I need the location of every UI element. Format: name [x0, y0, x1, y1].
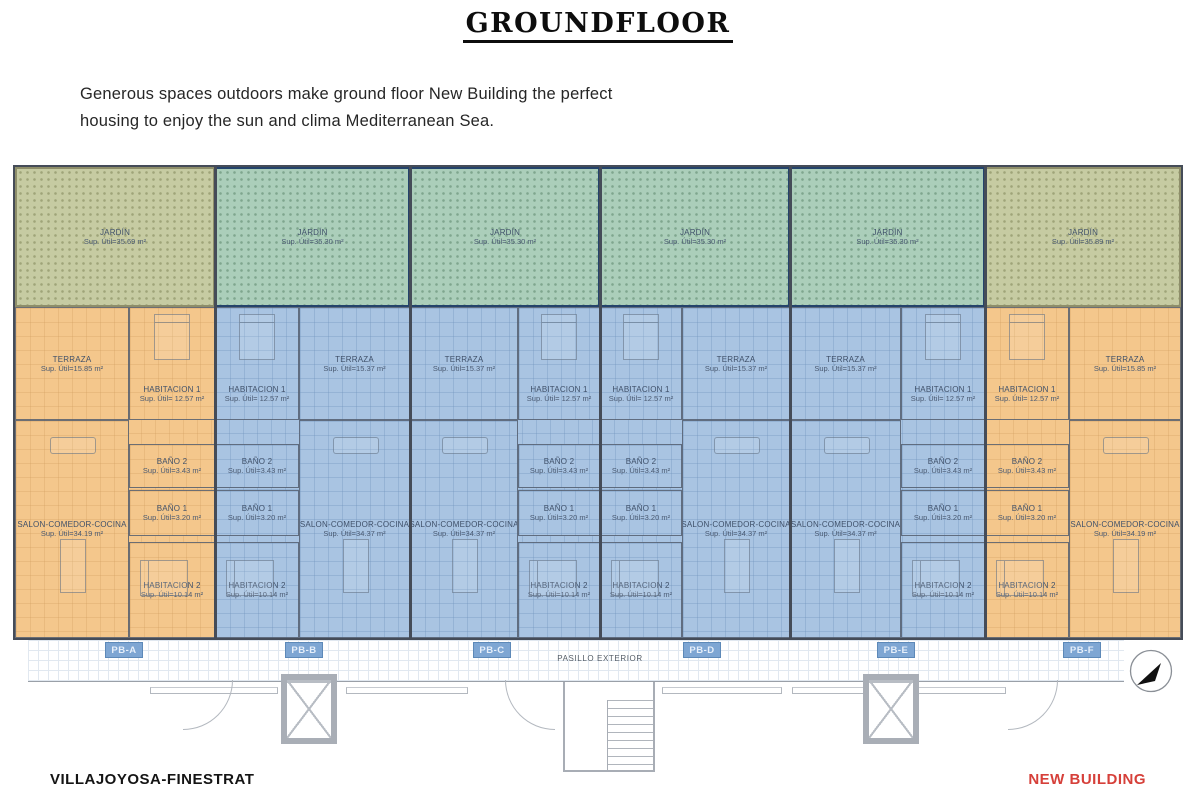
- room-area: Sup. Útil= 12.57 m²: [609, 394, 673, 403]
- room-habitacion-2: HABITACION 2Sup. Útil=10.14 m²: [901, 542, 985, 638]
- room-salon-comedor-cocina: SALON-COMEDOR-COCINASup. Útil=34.37 m²: [790, 420, 901, 638]
- room-area: Sup. Útil= 12.57 m²: [225, 394, 289, 403]
- party-wall: [599, 167, 602, 638]
- room-habitacion-2: HABITACION 2Sup. Útil=10.14 m²: [600, 542, 682, 638]
- furniture-bed-h: [996, 560, 1044, 596]
- room-bano-2: BAÑO 2Sup. Útil=3.43 m²: [518, 444, 600, 488]
- room-salon-comedor-cocina: SALON-COMEDOR-COCINASup. Útil=34.19 m²: [1069, 420, 1181, 638]
- room-habitacion-2: HABITACION 2Sup. Útil=10.14 m²: [215, 542, 299, 638]
- room-name: BAÑO 1: [1012, 504, 1043, 513]
- room-name: HABITACION 1: [612, 385, 669, 394]
- furniture-bed-h: [912, 560, 960, 596]
- furniture-bed-v: [541, 314, 577, 360]
- room-area: Sup. Útil=34.37 m²: [323, 529, 385, 538]
- room-salon-comedor-cocina: SALON-COMEDOR-COCINASup. Útil=34.37 m²: [299, 420, 410, 638]
- furniture-bed-h: [529, 560, 577, 596]
- room-name: BAÑO 1: [626, 504, 657, 513]
- footer-brand-label: NEW BUILDING: [1028, 771, 1146, 788]
- room-salon-comedor-cocina: SALON-COMEDOR-COCINASup. Útil=34.37 m²: [682, 420, 790, 638]
- room-name: TERRAZA: [445, 355, 484, 364]
- furniture-bed-v: [154, 314, 190, 360]
- room-area: Sup. Útil=3.20 m²: [143, 513, 201, 522]
- room-area: Sup. Útil=15.37 m²: [433, 364, 495, 373]
- room-name: BAÑO 2: [1012, 457, 1043, 466]
- room-name: BAÑO 2: [544, 457, 575, 466]
- furniture-table: [343, 539, 369, 593]
- room-name: TERRAZA: [1106, 355, 1145, 364]
- stair-shaft-left: [281, 674, 337, 744]
- page-title-wrap: GROUNDFLOOR: [0, 8, 1196, 43]
- room-area: Sup. Útil=34.19 m²: [41, 529, 103, 538]
- furniture-bed-v: [1009, 314, 1045, 360]
- room-name: BAÑO 2: [242, 457, 273, 466]
- room-area: Sup. Útil=35.30 m²: [474, 237, 536, 246]
- room-name: SALON-COMEDOR-COCINA: [1070, 520, 1179, 529]
- furniture-sofa: [824, 437, 870, 454]
- room-name: HABITACION 1: [228, 385, 285, 394]
- furniture-table: [834, 539, 860, 593]
- shaft-cross-pattern: [287, 680, 331, 738]
- room-area: Sup. Útil=34.37 m²: [433, 529, 495, 538]
- porch-outline: [662, 687, 782, 694]
- room-area: Sup. Útil=3.20 m²: [530, 513, 588, 522]
- room-terraza: TERRAZASup. Útil=15.85 m²: [1069, 307, 1181, 420]
- room-jardin: JARDÍNSup. Útil=35.30 m²: [600, 167, 790, 307]
- room-area: Sup. Útil=3.20 m²: [612, 513, 670, 522]
- room-jardin: JARDÍNSup. Útil=35.30 m²: [215, 167, 410, 307]
- room-name: BAÑO 1: [544, 504, 575, 513]
- room-habitacion-2: HABITACION 2Sup. Útil=10.14 m²: [985, 542, 1069, 638]
- room-name: BAÑO 2: [157, 457, 188, 466]
- central-stairwell: [563, 682, 655, 772]
- room-name: SALON-COMEDOR-COCINA: [682, 520, 790, 529]
- room-name: JARDÍN: [680, 228, 710, 237]
- room-name: SALON-COMEDOR-COCINA: [410, 520, 518, 529]
- room-salon-comedor-cocina: SALON-COMEDOR-COCINASup. Útil=34.19 m²: [15, 420, 129, 638]
- room-jardin: JARDÍNSup. Útil=35.30 m²: [790, 167, 985, 307]
- room-habitacion-1: HABITACION 1Sup. Útil= 12.57 m²: [518, 307, 600, 420]
- room-name: BAÑO 1: [157, 504, 188, 513]
- room-habitacion-1: HABITACION 1Sup. Útil= 12.57 m²: [985, 307, 1069, 420]
- room-bano-1: BAÑO 1Sup. Útil=3.20 m²: [901, 490, 985, 536]
- door-swing-arc: [505, 680, 555, 730]
- room-bano-1: BAÑO 1Sup. Útil=3.20 m²: [600, 490, 682, 536]
- room-area: Sup. Útil= 12.57 m²: [911, 394, 975, 403]
- room-area: Sup. Útil= 12.57 m²: [527, 394, 591, 403]
- unit-tag-PB-C: PB-C: [473, 642, 511, 658]
- room-area: Sup. Útil=15.37 m²: [323, 364, 385, 373]
- door-swing-arc: [183, 680, 233, 730]
- room-area: Sup. Útil=15.37 m²: [705, 364, 767, 373]
- room-area: Sup. Útil= 12.57 m²: [995, 394, 1059, 403]
- room-habitacion-2: HABITACION 2Sup. Útil=10.14 m²: [129, 542, 215, 638]
- furniture-sofa: [442, 437, 488, 454]
- room-area: Sup. Útil=3.43 m²: [998, 466, 1056, 475]
- room-name: TERRAZA: [826, 355, 865, 364]
- furniture-bed-h: [611, 560, 659, 596]
- room-bano-1: BAÑO 1Sup. Útil=3.20 m²: [985, 490, 1069, 536]
- room-name: BAÑO 2: [626, 457, 657, 466]
- room-name: JARDÍN: [872, 228, 902, 237]
- room-name: BAÑO 1: [928, 504, 959, 513]
- furniture-bed-h: [140, 560, 188, 596]
- room-area: Sup. Útil=3.20 m²: [228, 513, 286, 522]
- unit-PB-B: JARDÍNSup. Útil=35.30 m²TERRAZASup. Útil…: [215, 167, 410, 638]
- room-area: Sup. Útil=3.43 m²: [228, 466, 286, 475]
- room-area: Sup. Útil=35.30 m²: [856, 237, 918, 246]
- room-bano-2: BAÑO 2Sup. Útil=3.43 m²: [215, 444, 299, 488]
- room-area: Sup. Útil=34.19 m²: [1094, 529, 1156, 538]
- room-jardin: JARDÍNSup. Útil=35.69 m²: [15, 167, 215, 307]
- room-area: Sup. Útil=3.43 m²: [914, 466, 972, 475]
- room-area: Sup. Útil=3.20 m²: [998, 513, 1056, 522]
- room-name: BAÑO 1: [242, 504, 273, 513]
- furniture-table: [1113, 539, 1139, 593]
- room-terraza: TERRAZASup. Útil=15.37 m²: [790, 307, 901, 420]
- stair-steps: [607, 700, 653, 770]
- room-name: HABITACION 1: [143, 385, 200, 394]
- room-area: Sup. Útil=15.85 m²: [41, 364, 103, 373]
- room-habitacion-2: HABITACION 2Sup. Útil=10.14 m²: [518, 542, 600, 638]
- unit-tag-PB-D: PB-D: [683, 642, 721, 658]
- room-area: Sup. Útil=3.43 m²: [143, 466, 201, 475]
- page-title: GROUNDFLOOR: [463, 8, 734, 43]
- room-name: SALON-COMEDOR-COCINA: [17, 520, 126, 529]
- room-jardin: JARDÍNSup. Útil=35.89 m²: [985, 167, 1181, 307]
- room-name: TERRAZA: [53, 355, 92, 364]
- furniture-sofa: [333, 437, 379, 454]
- room-area: Sup. Útil=34.37 m²: [705, 529, 767, 538]
- room-bano-1: BAÑO 1Sup. Útil=3.20 m²: [518, 490, 600, 536]
- footer-location-label: VILLAJOYOSA-FINESTRAT: [50, 771, 254, 788]
- furniture-sofa: [714, 437, 760, 454]
- party-wall: [214, 167, 217, 638]
- unit-tag-PB-B: PB-B: [285, 642, 323, 658]
- furniture-bed-v: [925, 314, 961, 360]
- room-name: TERRAZA: [717, 355, 756, 364]
- unit-tag-PB-A: PB-A: [105, 642, 143, 658]
- room-name: BAÑO 2: [928, 457, 959, 466]
- room-area: Sup. Útil=35.69 m²: [84, 237, 146, 246]
- room-area: Sup. Útil=3.20 m²: [914, 513, 972, 522]
- room-name: SALON-COMEDOR-COCINA: [791, 520, 900, 529]
- description-line-1: Generous spaces outdoors make ground flo…: [80, 81, 760, 108]
- room-name: HABITACION 1: [530, 385, 587, 394]
- pasillo-exterior-label: PASILLO EXTERIOR: [540, 654, 660, 663]
- party-wall: [984, 167, 987, 638]
- units-region: JARDÍNSup. Útil=35.69 m²TERRAZASup. Útil…: [13, 165, 1183, 640]
- room-habitacion-1: HABITACION 1Sup. Útil= 12.57 m²: [215, 307, 299, 420]
- unit-PB-D: JARDÍNSup. Útil=35.30 m²TERRAZASup. Útil…: [600, 167, 790, 638]
- room-area: Sup. Útil=15.37 m²: [814, 364, 876, 373]
- room-area: Sup. Útil=3.43 m²: [530, 466, 588, 475]
- porch-outline: [346, 687, 468, 694]
- unit-PB-C: JARDÍNSup. Útil=35.30 m²TERRAZASup. Útil…: [410, 167, 600, 638]
- room-habitacion-1: HABITACION 1Sup. Útil= 12.57 m²: [600, 307, 682, 420]
- room-bano-2: BAÑO 2Sup. Útil=3.43 m²: [129, 444, 215, 488]
- room-area: Sup. Útil=3.43 m²: [612, 466, 670, 475]
- furniture-bed-h: [226, 560, 274, 596]
- room-area: Sup. Útil=35.89 m²: [1052, 237, 1114, 246]
- room-name: TERRAZA: [335, 355, 374, 364]
- north-arrow-icon: [1128, 648, 1174, 694]
- party-wall: [409, 167, 412, 638]
- room-terraza: TERRAZASup. Útil=15.85 m²: [15, 307, 129, 420]
- party-wall: [789, 167, 792, 638]
- description: Generous spaces outdoors make ground flo…: [80, 81, 760, 134]
- room-terraza: TERRAZASup. Útil=15.37 m²: [410, 307, 518, 420]
- room-terraza: TERRAZASup. Útil=15.37 m²: [682, 307, 790, 420]
- groundfloor-page: GROUNDFLOOR Generous spaces outdoors mak…: [0, 0, 1196, 800]
- description-line-2: housing to enjoy the sun and clima Medit…: [80, 108, 760, 135]
- room-habitacion-1: HABITACION 1Sup. Útil= 12.57 m²: [901, 307, 985, 420]
- furniture-table: [452, 539, 478, 593]
- furniture-table: [60, 539, 86, 593]
- room-bano-1: BAÑO 1Sup. Útil=3.20 m²: [215, 490, 299, 536]
- room-area: Sup. Útil=15.85 m²: [1094, 364, 1156, 373]
- room-area: Sup. Útil= 12.57 m²: [140, 394, 204, 403]
- furniture-sofa: [1103, 437, 1149, 454]
- unit-tag-PB-F: PB-F: [1063, 642, 1101, 658]
- room-area: Sup. Útil=35.30 m²: [664, 237, 726, 246]
- furniture-sofa: [50, 437, 96, 454]
- furniture-bed-v: [239, 314, 275, 360]
- room-jardin: JARDÍNSup. Útil=35.30 m²: [410, 167, 600, 307]
- stair-shaft-right: [863, 674, 919, 744]
- unit-PB-E: JARDÍNSup. Útil=35.30 m²TERRAZASup. Útil…: [790, 167, 985, 638]
- furniture-table: [724, 539, 750, 593]
- room-area: Sup. Útil=35.30 m²: [281, 237, 343, 246]
- room-bano-1: BAÑO 1Sup. Útil=3.20 m²: [129, 490, 215, 536]
- room-name: HABITACION 1: [914, 385, 971, 394]
- room-habitacion-1: HABITACION 1Sup. Útil= 12.57 m²: [129, 307, 215, 420]
- room-name: HABITACION 1: [998, 385, 1055, 394]
- room-bano-2: BAÑO 2Sup. Útil=3.43 m²: [985, 444, 1069, 488]
- unit-PB-F: JARDÍNSup. Útil=35.89 m²TERRAZASup. Útil…: [985, 167, 1181, 638]
- room-bano-2: BAÑO 2Sup. Útil=3.43 m²: [600, 444, 682, 488]
- unit-PB-A: JARDÍNSup. Útil=35.69 m²TERRAZASup. Útil…: [15, 167, 215, 638]
- door-swing-arc: [1008, 680, 1058, 730]
- room-name: SALON-COMEDOR-COCINA: [300, 520, 409, 529]
- room-name: JARDÍN: [490, 228, 520, 237]
- room-name: JARDÍN: [1068, 228, 1098, 237]
- room-name: JARDÍN: [297, 228, 327, 237]
- room-area: Sup. Útil=34.37 m²: [814, 529, 876, 538]
- room-salon-comedor-cocina: SALON-COMEDOR-COCINASup. Útil=34.37 m²: [410, 420, 518, 638]
- shaft-cross-pattern: [869, 680, 913, 738]
- room-name: JARDÍN: [100, 228, 130, 237]
- room-bano-2: BAÑO 2Sup. Útil=3.43 m²: [901, 444, 985, 488]
- room-terraza: TERRAZASup. Útil=15.37 m²: [299, 307, 410, 420]
- unit-tag-PB-E: PB-E: [877, 642, 915, 658]
- furniture-bed-v: [623, 314, 659, 360]
